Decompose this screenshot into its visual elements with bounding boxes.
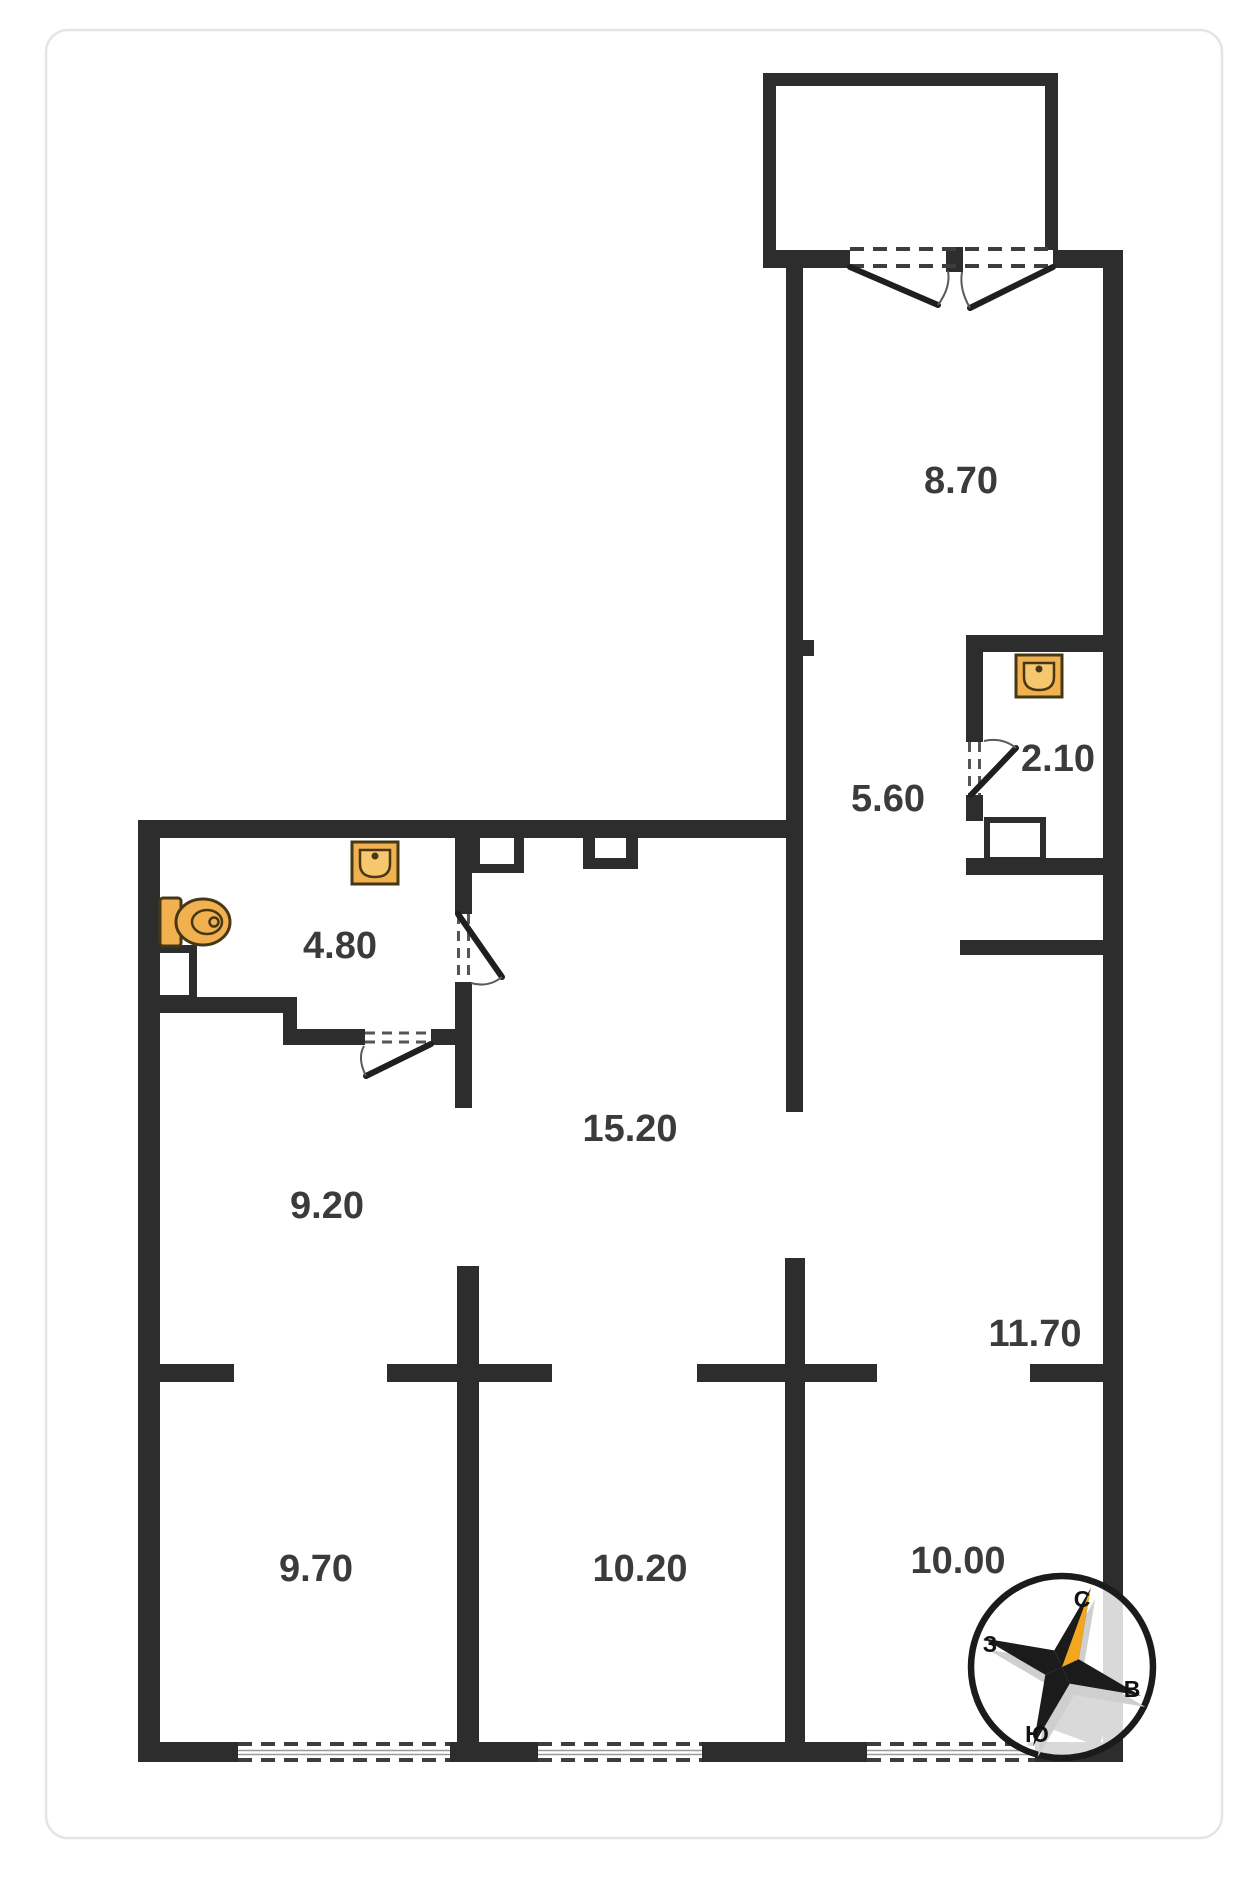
wall-bath-step-b1 (283, 1029, 365, 1045)
wall-bath-right-upper (455, 838, 472, 914)
wall-balcony-door-left (763, 250, 850, 268)
sink-icon (1016, 655, 1062, 697)
floor-plan-page: 8.70 2.10 5.60 4.80 15.20 9.20 11.70 9.7… (0, 0, 1260, 1891)
duct-box (157, 995, 197, 1003)
room-label-hall-upper: 5.60 (851, 778, 925, 820)
duct-box (189, 945, 197, 1003)
wall-column-left (786, 250, 803, 1112)
wall-top-left-section (138, 820, 803, 838)
vent-notch (583, 858, 638, 869)
wall-bath-step-b2 (431, 1029, 457, 1045)
wall-mid-seg (1030, 1364, 1109, 1382)
compass-label-north: С (1074, 1586, 1091, 1612)
room-label-wc: 2.10 (1021, 738, 1095, 780)
wc-fixture-box (987, 820, 1043, 860)
room-label-room-a: 9.20 (290, 1185, 364, 1227)
sink-icon (352, 842, 398, 884)
wall-balcony-left (763, 73, 776, 250)
toilet-icon (160, 898, 230, 946)
room-label-room-b: 11.70 (989, 1313, 1082, 1355)
compass-label-south: Ю (1025, 1721, 1049, 1747)
wall-wc-top (966, 635, 1103, 652)
wall-mid-seg (160, 1364, 234, 1382)
wall-divider-2 (785, 1258, 805, 1762)
room-label-bathroom: 4.80 (303, 925, 377, 967)
wall-bath-right-lower (455, 982, 472, 1108)
wall-bottom-seg (702, 1742, 867, 1762)
wall-bottom-seg (138, 1742, 238, 1762)
vent-notch (472, 864, 524, 873)
floor-plan-canvas: 8.70 2.10 5.60 4.80 15.20 9.20 11.70 9.7… (0, 0, 1260, 1891)
room-label-hall-main: 15.20 (582, 1108, 677, 1150)
wall-balcony-right (1045, 73, 1058, 250)
wall-room-b-top (960, 940, 1103, 955)
wall-wc-left-lower (966, 795, 983, 821)
compass-label-west: З (983, 1631, 997, 1657)
room-label-room-c: 9.70 (279, 1548, 353, 1590)
room-label-room-e: 10.00 (910, 1540, 1005, 1582)
wall-stub (803, 640, 814, 656)
wall-divider-1 (457, 1266, 479, 1762)
room-label-room-d: 10.20 (592, 1548, 687, 1590)
room-label-loggia: 8.70 (924, 460, 998, 502)
wall-balcony-top (763, 73, 1058, 86)
compass-label-east: В (1124, 1676, 1141, 1702)
wall-outer-right (1103, 250, 1123, 1762)
wall-wc-left-upper (966, 652, 983, 742)
wall-outer-left (138, 820, 160, 1762)
